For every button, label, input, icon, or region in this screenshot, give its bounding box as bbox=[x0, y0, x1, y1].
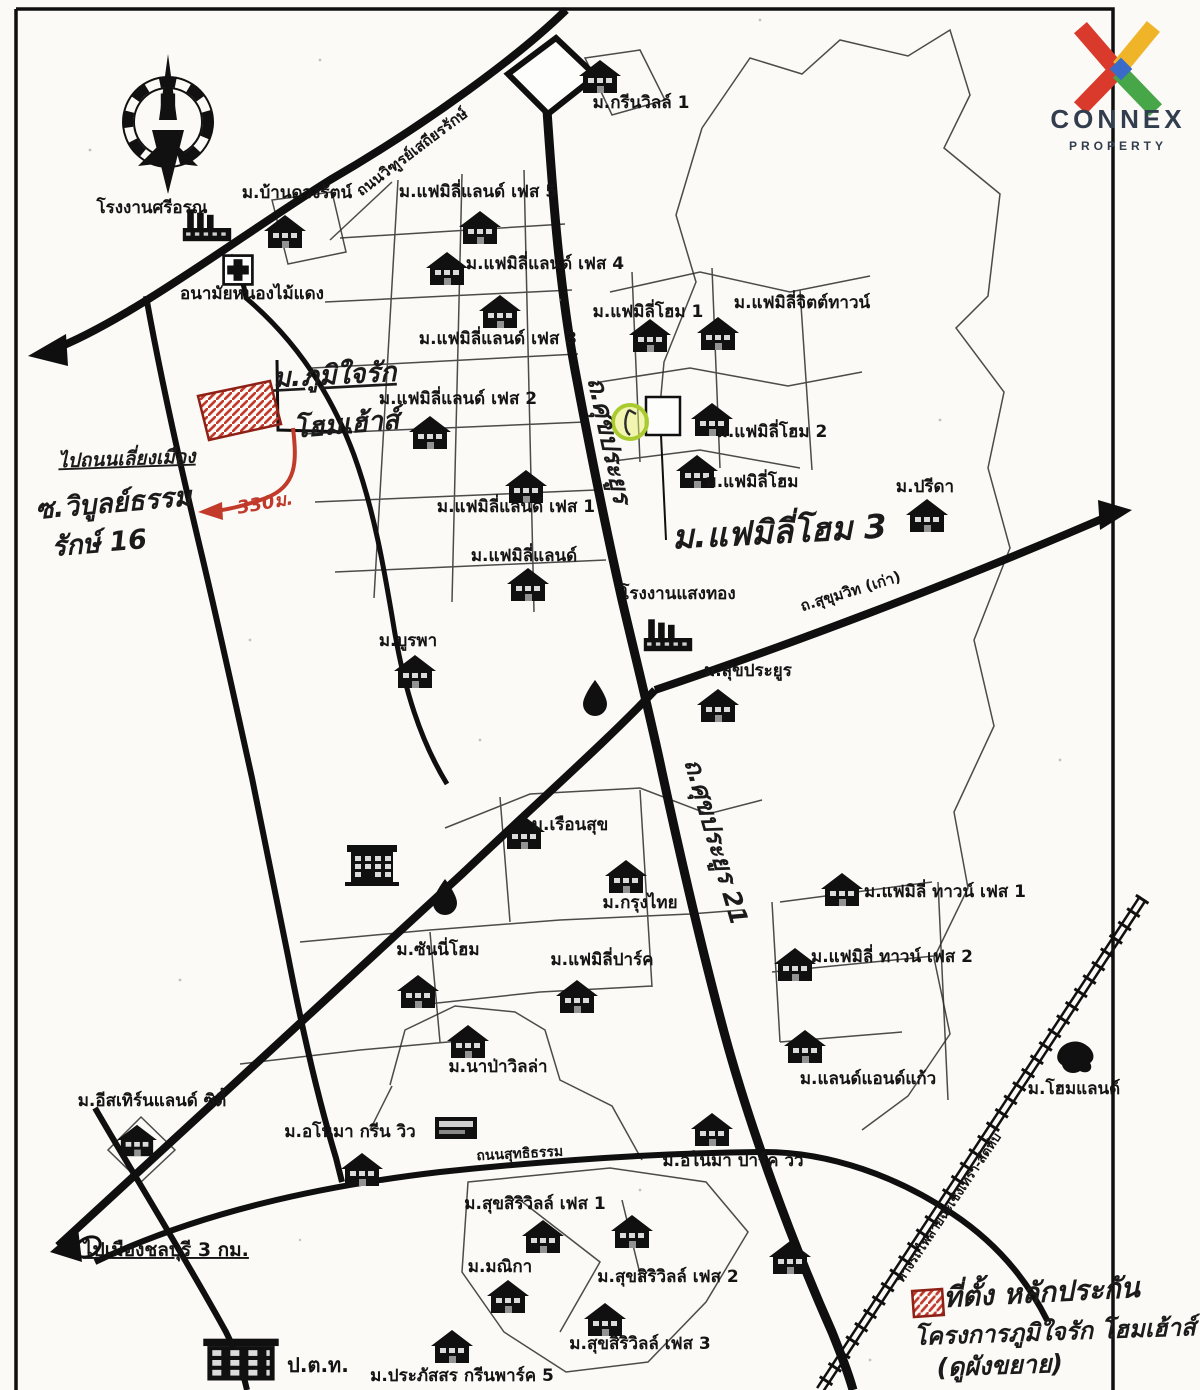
house-icon bbox=[629, 319, 671, 352]
map-label: ม.แฟมิลี่แลนด์ เฟส 4 bbox=[466, 251, 624, 274]
road-arrow-east-icon bbox=[1098, 500, 1132, 530]
house-icon bbox=[487, 1280, 529, 1313]
house-icon bbox=[769, 1241, 811, 1274]
distance-note: 330ม. bbox=[236, 488, 295, 518]
plot-outline bbox=[646, 397, 680, 435]
compass-rose: N bbox=[123, 54, 213, 194]
map-label: ม.สุขสิริวิลล์ เฟส 3 bbox=[569, 1333, 710, 1354]
house-icon bbox=[584, 1303, 626, 1336]
to-bypass-note: ไปถนนเลี่ยงเมือง bbox=[58, 443, 198, 473]
map-label: ม.แฟมิลี่แลนด์ เฟส 3 bbox=[419, 326, 577, 349]
connex-x-mark-icon bbox=[1086, 33, 1150, 104]
house-icon bbox=[774, 948, 816, 981]
cross-icon bbox=[224, 256, 253, 285]
map-label: ม.อีสเทิร์นแลนด์ ซิตี้ bbox=[78, 1087, 228, 1111]
map-label: ม.ประภัสสร กรีนพาร์ค 5 bbox=[370, 1365, 554, 1386]
house-icon bbox=[906, 499, 948, 532]
house-icon bbox=[556, 980, 598, 1013]
map-label: ไปเมืองชลบุรี 3 กม. bbox=[81, 1238, 249, 1262]
house-icon bbox=[611, 1215, 653, 1248]
legend-line-2: โครงการภูมิใจรัก โฮมเฮ้าส์ bbox=[913, 1312, 1200, 1352]
map-label: ม.แฟมิลี่โฮม bbox=[706, 469, 799, 492]
house-icon bbox=[426, 252, 468, 285]
legend-marker bbox=[912, 1289, 944, 1317]
school-icon bbox=[345, 845, 399, 886]
map-labels: โรงงานศรีอรุณม.บ้านดวงรัตน์อนามัยหนองไม้… bbox=[34, 92, 1200, 1386]
map-label: ม.ปรีดา bbox=[896, 476, 954, 497]
map-label: ม.แฟมิลี่ ทาวน์ เฟส 2 bbox=[811, 944, 973, 967]
map-label: ม.แฟมิลี่โฮม 1 bbox=[593, 299, 704, 322]
map-label: ม.เรือนสุข bbox=[532, 814, 608, 835]
soi-name-line2: รักษ์ 16 bbox=[50, 523, 148, 563]
map-label: โรงงานศรีอรุณ bbox=[95, 197, 207, 218]
house-icon bbox=[479, 295, 521, 328]
map-label: ป.ต.ท. bbox=[287, 1353, 349, 1377]
house-icon bbox=[784, 1030, 826, 1063]
map-page: โรงงานศรีอรุณม.บ้านดวงรัตน์อนามัยหนองไม้… bbox=[0, 0, 1200, 1390]
railway-label: ทางรถไฟสายฉะเชิงเทรา-สัตหีบ bbox=[892, 1129, 1005, 1285]
sign-icon bbox=[435, 1117, 477, 1139]
house-icon bbox=[447, 1025, 489, 1058]
soi-name-line1: ซ.วิบูลย์ธรรม bbox=[34, 480, 195, 527]
map-label: ม.แฟมิลี่แลนด์ เฟส 1 bbox=[437, 494, 595, 517]
map-label: ม.แฟมิลี่โฮม 2 bbox=[717, 419, 828, 442]
road-suthitham bbox=[95, 1152, 1047, 1320]
drop-icon bbox=[583, 680, 607, 716]
house-icon bbox=[522, 1220, 564, 1253]
map-label: ม.สุขประยูร bbox=[704, 661, 793, 682]
map-label: ม.โฮมแลนด์ bbox=[1028, 1078, 1120, 1099]
road-arrow-west-icon bbox=[28, 334, 68, 366]
map-label: ม.ซันนี่โฮม bbox=[396, 937, 479, 960]
house-icon bbox=[507, 568, 549, 601]
subdivision-boundary bbox=[772, 882, 948, 1100]
house-icon bbox=[697, 689, 739, 722]
house-icon bbox=[605, 860, 647, 893]
map-label: โรงงานแสงทอง bbox=[619, 583, 735, 604]
map-label: ม.สุขสิริวิลล์ เฟส 1 bbox=[464, 1193, 605, 1214]
logo-brand-text: CONNEX bbox=[1050, 104, 1185, 134]
family-home-3-note: ม.แฟมิลี่โฮม 3 bbox=[671, 502, 888, 556]
house-icon bbox=[459, 211, 501, 244]
factory-icon bbox=[644, 619, 692, 651]
map-label: ม.แฟมิลี่ปาร์ค bbox=[550, 947, 653, 970]
ptt-icon bbox=[203, 1339, 278, 1381]
map-label: ม.แลนด์แอนด์แก้ว bbox=[800, 1068, 936, 1089]
house-icon bbox=[691, 1113, 733, 1146]
house-icon bbox=[431, 1330, 473, 1363]
map-label: ม.อโนมา กรีน วิว bbox=[284, 1121, 415, 1142]
subdivision-boundary bbox=[240, 788, 762, 1064]
legend-line-3: (ดูผังขยาย) bbox=[936, 1349, 1063, 1383]
map-label: ม.นาป่าวิลล่า bbox=[448, 1057, 547, 1077]
map-label: อนามัยหนองไม้แดง bbox=[180, 283, 324, 304]
map-label: ม.กรีนวิลล์ 1 bbox=[593, 92, 690, 113]
map-label: ม.กรุงไทย bbox=[602, 892, 677, 913]
map-label: ม.แฟมิลี่แลนด์ bbox=[471, 543, 577, 566]
map-label: ม.อโนมา ปาร์ค วิว bbox=[662, 1150, 803, 1171]
house-icon bbox=[117, 1125, 157, 1156]
minor-lane bbox=[661, 435, 666, 540]
project-name-line2: โฮมเฮ้าส์ bbox=[292, 402, 407, 445]
map-label: ม.แฟมิลี่แลนด์ เฟส 2 bbox=[379, 386, 537, 409]
house-icon bbox=[341, 1153, 383, 1186]
logo-sub-text: PROPERTY bbox=[1069, 139, 1167, 153]
road-connector-middle bbox=[230, 255, 447, 784]
house-icon bbox=[397, 975, 439, 1008]
map-label: ม.แฟมิลี่ ทาวน์ เฟส 1 bbox=[864, 879, 1026, 902]
map-label: ม.มณิกา bbox=[468, 1257, 532, 1277]
blob-icon bbox=[1057, 1042, 1093, 1073]
map-label: ม.บูรพา bbox=[379, 631, 437, 652]
map-label: ม.แฟมิลี่จิตต์ทาวน์ bbox=[734, 290, 871, 313]
map-label: ม.บ้านดวงรัตน์ bbox=[242, 182, 353, 203]
property-location-marker bbox=[198, 381, 281, 440]
subdivision-boundary bbox=[658, 128, 702, 428]
compass-north-label: N bbox=[159, 91, 177, 116]
map-label: ม.สุขสิริวิลล์ เฟส 2 bbox=[597, 1266, 738, 1287]
map-label: ม.แฟมิลี่แลนด์ เฟส 5 bbox=[399, 179, 557, 202]
house-icon bbox=[409, 416, 451, 449]
house-icon bbox=[821, 873, 863, 906]
connex-logo: CONNEX PROPERTY bbox=[1050, 33, 1185, 153]
map-canvas: โรงงานศรีอรุณม.บ้านดวงรัตน์อนามัยหนองไม้… bbox=[0, 0, 1200, 1390]
